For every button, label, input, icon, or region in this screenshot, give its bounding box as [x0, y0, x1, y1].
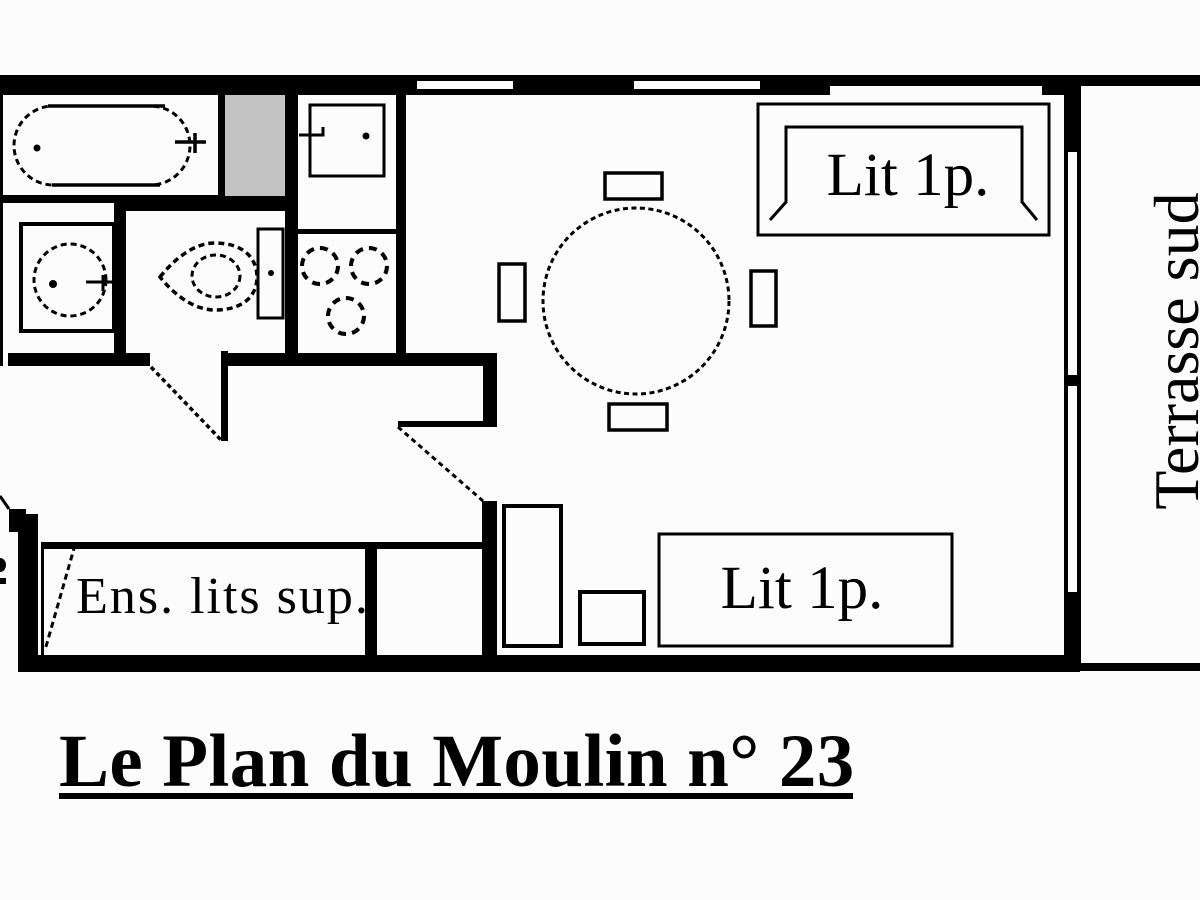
svg-text:Ens. lits sup.: Ens. lits sup.: [76, 568, 370, 625]
svg-text:Lit 1p.: Lit 1p.: [721, 555, 884, 622]
svg-text:Le Plan du Moulin n° 23: Le Plan du Moulin n° 23: [59, 720, 855, 803]
svg-text:Terrasse sud: Terrasse sud: [1141, 192, 1200, 509]
svg-text:Lit 1p.: Lit 1p.: [827, 142, 990, 209]
